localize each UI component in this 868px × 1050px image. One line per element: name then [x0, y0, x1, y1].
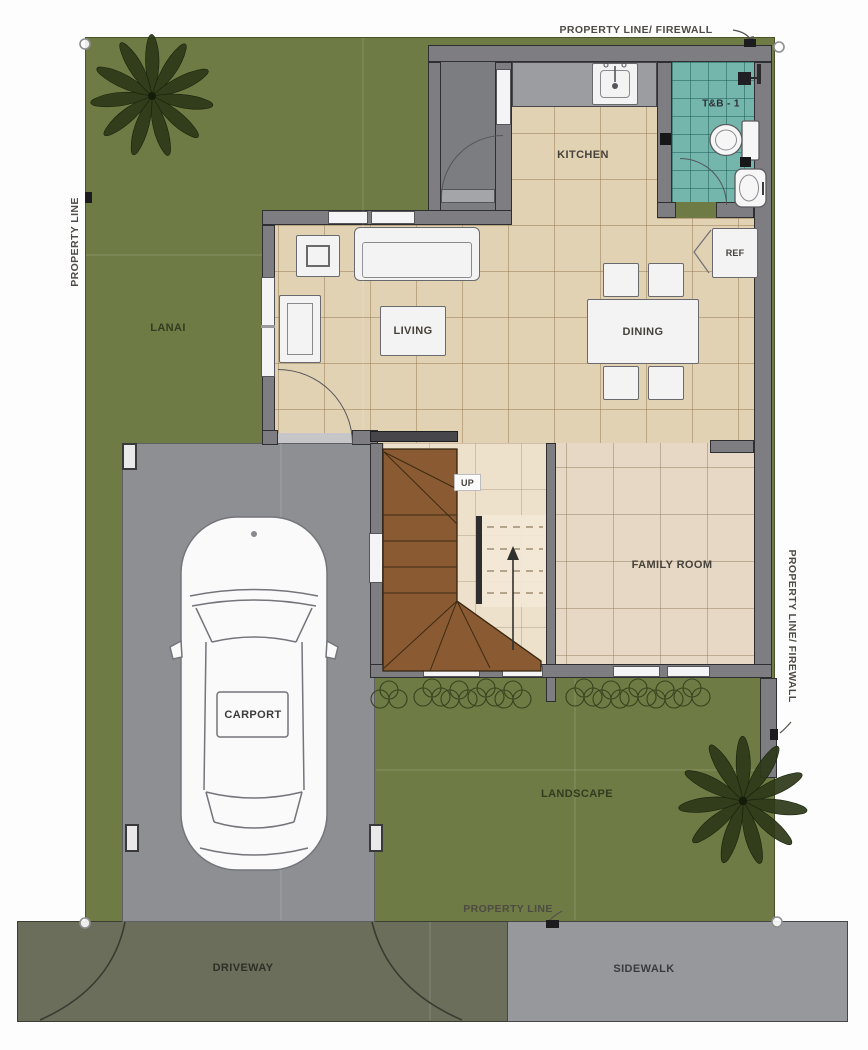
property-line-bottom-label: PROPERTY LINE — [463, 903, 553, 915]
property-line-firewall-right-label: PROPERTY LINE/ FIREWALL — [786, 549, 798, 702]
carport-label: CARPORT — [224, 709, 281, 721]
table-lamp — [306, 245, 330, 267]
window — [369, 533, 383, 583]
coffee-table: LIVING — [380, 306, 446, 356]
sidewalk-paving — [507, 921, 848, 1022]
floor-plan-canvas: LIVING DINING REF UP — [0, 0, 868, 1050]
family-room-label: FAMILY ROOM — [632, 559, 713, 571]
kitchen-floor-strip — [657, 218, 754, 225]
window — [502, 666, 543, 677]
carport-post — [122, 443, 137, 470]
window — [328, 211, 368, 224]
wall-bath-bottom — [657, 202, 676, 218]
wall-family-stub — [710, 440, 754, 453]
stair-upper-flight-zone — [482, 515, 546, 607]
dining-table: DINING — [587, 299, 699, 364]
up-label: UP — [461, 478, 474, 488]
living-label: LIVING — [393, 325, 432, 337]
entry-canopy — [370, 431, 458, 442]
firewall-fence — [760, 678, 777, 778]
wall-service-left — [428, 62, 441, 211]
kitchen-label: KITCHEN — [557, 149, 609, 161]
utility-mark — [546, 920, 559, 928]
ref-label: REF — [726, 248, 745, 258]
sofa — [354, 227, 480, 281]
dining-chair — [603, 263, 639, 297]
up-label-box: UP — [454, 474, 481, 491]
kitchen-sink — [592, 63, 638, 105]
carport-post — [125, 824, 139, 852]
lanai-label: LANAI — [150, 322, 186, 334]
window — [496, 69, 511, 125]
window — [613, 666, 660, 677]
tb1-label: T&B - 1 — [702, 99, 740, 110]
carport-slab — [122, 443, 375, 922]
wall-bath-left — [657, 62, 672, 206]
wall-living-bottom — [262, 430, 278, 445]
kitchen-floor — [512, 107, 657, 225]
dining-chair — [648, 263, 684, 297]
side-table — [296, 235, 340, 277]
utility-mark — [85, 192, 92, 203]
wall-top — [428, 45, 772, 62]
dining-chair — [603, 366, 639, 400]
carport-post — [369, 824, 383, 852]
dining-label: DINING — [623, 326, 664, 338]
wall-right — [754, 62, 772, 675]
dining-chair — [648, 366, 684, 400]
window-mullion — [261, 325, 275, 328]
utility-mark — [744, 39, 756, 47]
refrigerator: REF — [712, 228, 758, 278]
property-line-firewall-top-label: PROPERTY LINE/ FIREWALL — [559, 24, 712, 36]
window — [667, 666, 710, 677]
utility-mark — [770, 729, 778, 740]
driveway-label: DRIVEWAY — [213, 962, 274, 974]
landscape-label: LANDSCAPE — [541, 788, 613, 800]
armchair — [279, 295, 321, 363]
window — [371, 211, 415, 224]
sidewalk-label: SIDEWALK — [613, 963, 674, 975]
window — [423, 666, 480, 677]
property-line-left-label: PROPERTY LINE — [69, 197, 81, 287]
family-room-floor — [556, 443, 754, 664]
